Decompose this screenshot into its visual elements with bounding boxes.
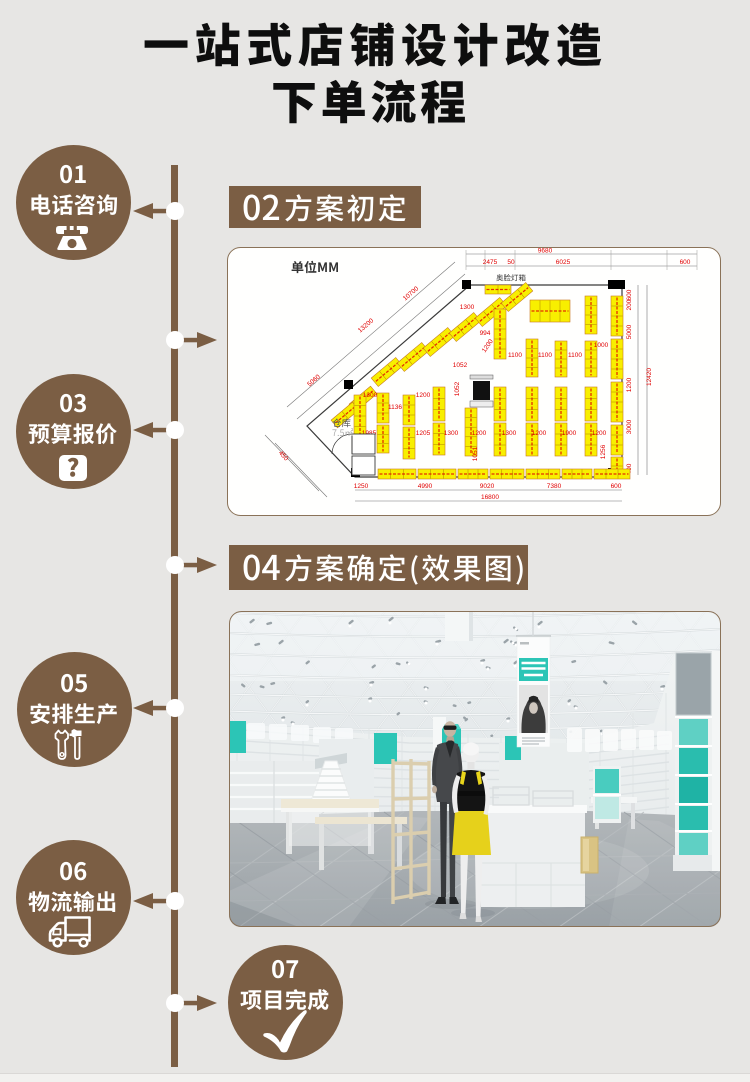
svg-text:1200: 1200 <box>592 430 607 437</box>
svg-text:1256: 1256 <box>600 444 607 459</box>
svg-text:1100: 1100 <box>538 352 552 359</box>
svg-text:7380: 7380 <box>547 483 562 490</box>
svg-text:9680: 9680 <box>538 248 553 255</box>
svg-text:600: 600 <box>611 483 622 490</box>
svg-text:200: 200 <box>626 299 633 310</box>
svg-text:1100: 1100 <box>568 352 582 359</box>
svg-text:600: 600 <box>626 289 633 300</box>
svg-text:3000: 3000 <box>626 419 633 434</box>
svg-text:1051: 1051 <box>472 446 479 461</box>
svg-text:1300: 1300 <box>444 430 459 437</box>
svg-text:16800: 16800 <box>481 494 499 501</box>
svg-text:1200: 1200 <box>532 430 547 437</box>
svg-text:1200: 1200 <box>626 377 633 392</box>
svg-text:1100: 1100 <box>508 352 522 359</box>
svg-text:1900: 1900 <box>562 430 577 437</box>
svg-text:600: 600 <box>680 259 691 266</box>
svg-text:1200: 1200 <box>472 430 487 437</box>
svg-text:9020: 9020 <box>480 483 495 490</box>
svg-text:1000: 1000 <box>594 342 609 349</box>
svg-text:12420: 12420 <box>646 368 653 386</box>
svg-text:1052: 1052 <box>453 362 468 369</box>
svg-text:2475: 2475 <box>483 259 498 266</box>
svg-text:50: 50 <box>507 259 515 266</box>
svg-text:1052: 1052 <box>454 381 461 396</box>
svg-text:1300: 1300 <box>363 392 378 399</box>
svg-text:1205: 1205 <box>416 430 431 437</box>
svg-text:1300: 1300 <box>502 430 517 437</box>
svg-text:1136: 1136 <box>388 404 402 411</box>
svg-text:5000: 5000 <box>626 324 633 339</box>
svg-text:1300: 1300 <box>460 304 475 311</box>
svg-text:1200: 1200 <box>416 392 431 399</box>
svg-text:6025: 6025 <box>556 259 571 266</box>
svg-text:4990: 4990 <box>418 483 433 490</box>
svg-text:1250: 1250 <box>354 483 369 490</box>
svg-text:994: 994 <box>480 330 491 337</box>
